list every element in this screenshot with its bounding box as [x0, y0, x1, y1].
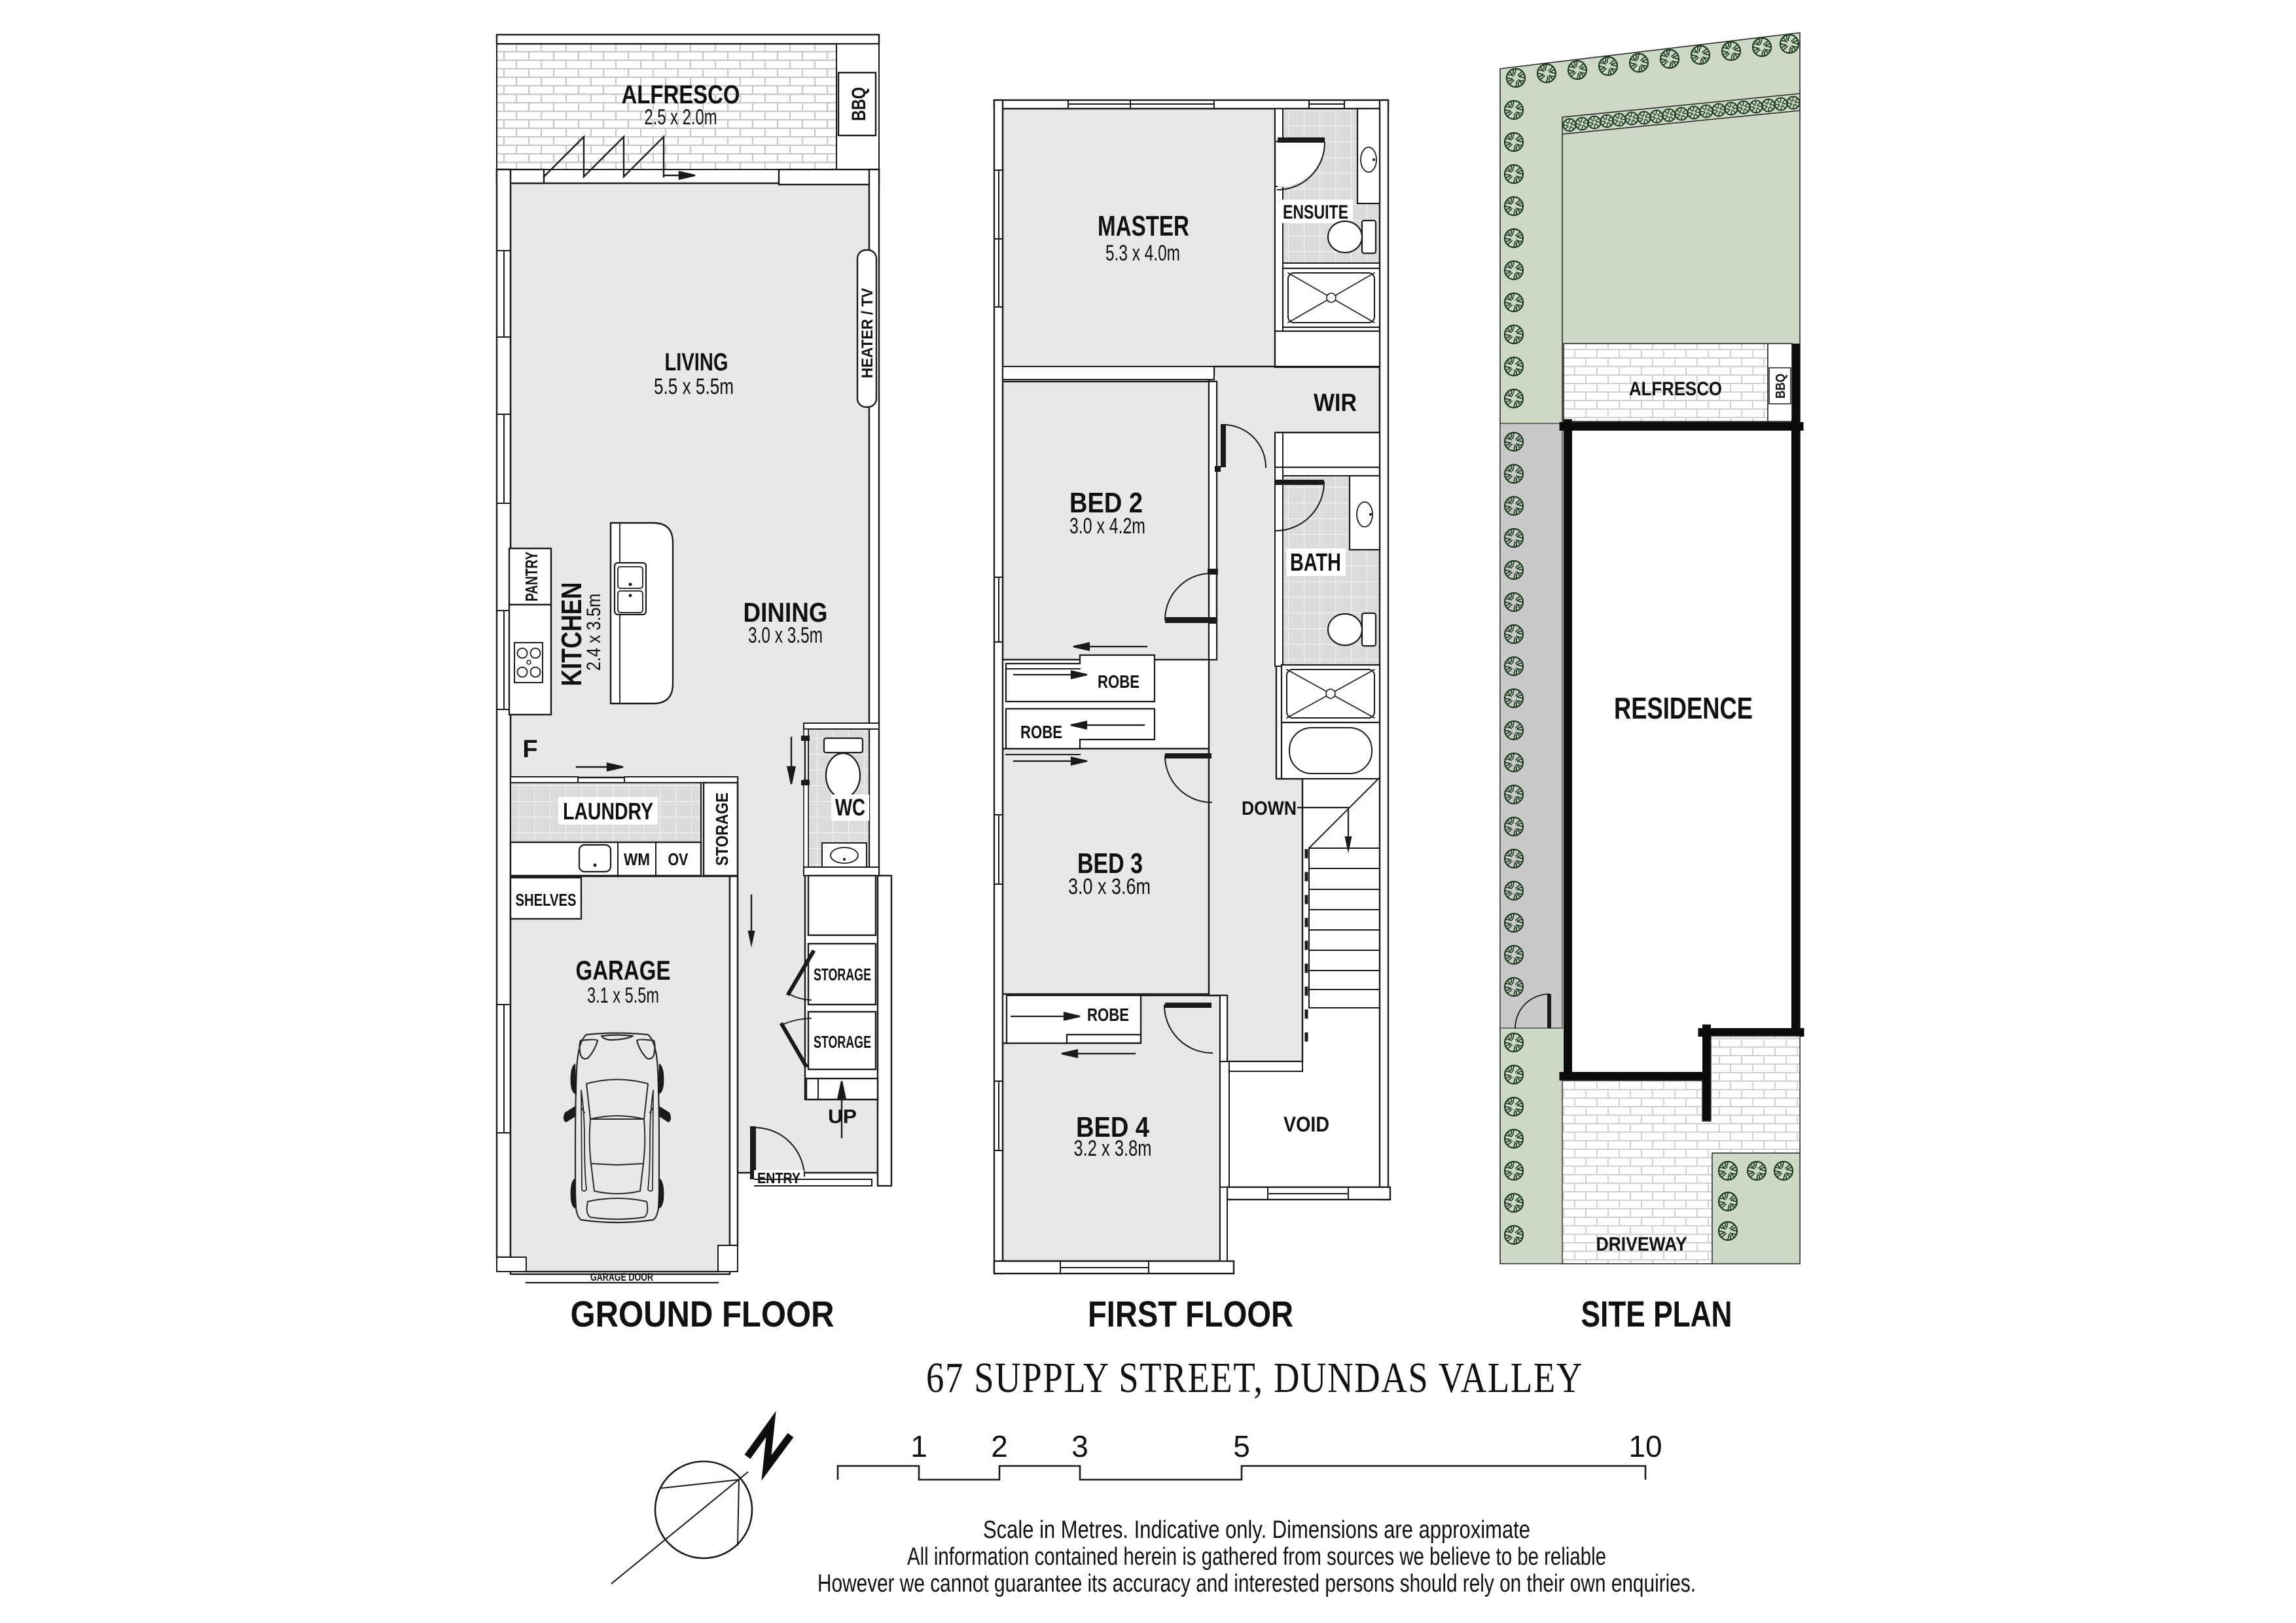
svg-text:ROBE: ROBE	[1087, 1005, 1129, 1025]
svg-text:ENSUITE: ENSUITE	[1283, 202, 1348, 223]
svg-text:GARAGE DOOR: GARAGE DOOR	[590, 1271, 653, 1283]
svg-text:WIR: WIR	[1314, 389, 1357, 417]
svg-text:3.2 x 3.8m: 3.2 x 3.8m	[1074, 1136, 1152, 1161]
svg-text:PANTRY: PANTRY	[522, 552, 541, 601]
svg-text:67 SUPPLY STREET, DUNDAS VALLE: 67 SUPPLY STREET, DUNDAS VALLEY	[926, 1354, 1583, 1402]
svg-text:2.5 x 2.0m: 2.5 x 2.0m	[645, 105, 717, 129]
svg-text:Scale in Metres. Indicative on: Scale in Metres. Indicative only. Dimens…	[983, 1516, 1530, 1544]
svg-text:ENTRY: ENTRY	[757, 1169, 800, 1186]
svg-text:ROBE: ROBE	[1098, 671, 1139, 692]
svg-text:BATH: BATH	[1290, 549, 1341, 577]
svg-text:2: 2	[991, 1429, 1008, 1463]
svg-text:LIVING: LIVING	[665, 349, 728, 376]
svg-text:ROBE: ROBE	[1020, 722, 1062, 742]
svg-text:3.1 x 5.5m: 3.1 x 5.5m	[587, 983, 659, 1007]
svg-text:3.0 x 4.2m: 3.0 x 4.2m	[1069, 514, 1145, 539]
svg-text:UP: UP	[828, 1106, 857, 1128]
svg-text:VOID: VOID	[1283, 1113, 1329, 1136]
svg-text:OV: OV	[668, 849, 689, 869]
svg-text:5: 5	[1233, 1429, 1250, 1463]
svg-text:MASTER: MASTER	[1098, 210, 1189, 242]
svg-text:RESIDENCE: RESIDENCE	[1614, 691, 1753, 725]
svg-text:ALFRESCO: ALFRESCO	[1629, 378, 1722, 400]
svg-text:FIRST FLOOR: FIRST FLOOR	[1088, 1293, 1293, 1334]
svg-text:All information contained here: All information contained herein is gath…	[907, 1543, 1606, 1571]
svg-text:STORAGE: STORAGE	[814, 965, 871, 984]
svg-text:3: 3	[1071, 1429, 1088, 1463]
svg-text:GROUND FLOOR: GROUND FLOOR	[571, 1293, 834, 1334]
svg-text:3.0 x 3.6m: 3.0 x 3.6m	[1068, 874, 1151, 899]
svg-text:1: 1	[910, 1429, 927, 1463]
svg-text:WC: WC	[835, 794, 865, 821]
svg-text:2.4 x 3.5m: 2.4 x 3.5m	[583, 594, 605, 671]
svg-text:DOWN: DOWN	[1242, 798, 1297, 819]
svg-text:HEATER / TV: HEATER / TV	[859, 288, 876, 378]
svg-text:LAUNDRY: LAUNDRY	[563, 798, 653, 825]
svg-text:BBQ: BBQ	[848, 87, 870, 121]
svg-text:DRIVEWAY: DRIVEWAY	[1596, 1234, 1687, 1255]
svg-text:BBQ: BBQ	[1774, 374, 1788, 399]
svg-text:WM: WM	[624, 849, 650, 869]
svg-text:GARAGE: GARAGE	[576, 955, 671, 986]
svg-text:STORAGE: STORAGE	[814, 1032, 871, 1052]
svg-text:5.3 x 4.0m: 5.3 x 4.0m	[1105, 241, 1180, 266]
svg-text:STORAGE: STORAGE	[712, 793, 732, 866]
svg-text:5.5 x 5.5m: 5.5 x 5.5m	[654, 374, 734, 399]
svg-text:However we cannot guarantee it: However we cannot guarantee its accuracy…	[817, 1570, 1696, 1597]
svg-text:F: F	[522, 736, 537, 763]
svg-text:3.0 x 3.5m: 3.0 x 3.5m	[748, 623, 823, 648]
svg-text:10: 10	[1628, 1429, 1662, 1463]
svg-text:SITE PLAN: SITE PLAN	[1581, 1293, 1732, 1334]
svg-text:SHELVES: SHELVES	[516, 890, 577, 910]
